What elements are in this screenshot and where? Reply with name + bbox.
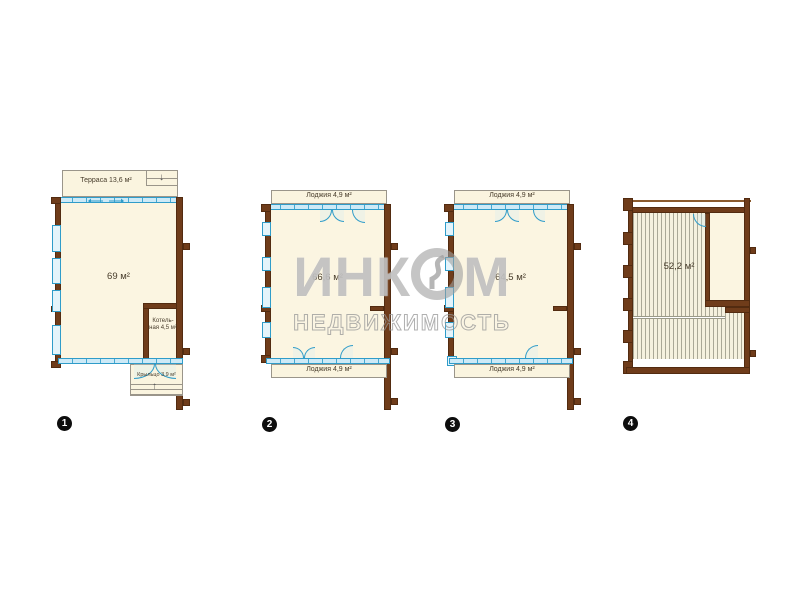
main-room bbox=[271, 210, 384, 358]
loggia-top-label: Лоджия 4,9 м² bbox=[454, 192, 570, 199]
wall-tick bbox=[391, 243, 398, 250]
boiler-room-label: Котель- ная 4,5 м² bbox=[149, 318, 177, 332]
window bbox=[262, 222, 271, 236]
window bbox=[52, 258, 61, 284]
interior-wall-stub bbox=[370, 306, 384, 311]
window bbox=[262, 287, 271, 308]
wall-right bbox=[567, 204, 574, 410]
window bbox=[262, 322, 271, 338]
room-area-label: 52,2 м² bbox=[633, 261, 725, 272]
wall-tick bbox=[750, 350, 756, 357]
wall-tick bbox=[623, 232, 633, 245]
wall-tick bbox=[623, 265, 633, 278]
porch-step bbox=[131, 394, 182, 395]
floor-badge-1: 1 bbox=[57, 416, 72, 431]
wall-tick bbox=[574, 243, 581, 250]
wall-tick bbox=[750, 247, 756, 254]
boiler-room-wall bbox=[143, 303, 177, 309]
room-area-label: 66,6 м² bbox=[271, 272, 384, 283]
void-room-wall bbox=[705, 213, 710, 307]
floor-plan-3: Лоджия 4,9 м² 64,5 м² Лоджия 4,9 м² 3 bbox=[441, 188, 591, 438]
porch-label: Крыльцо 3,9 м² bbox=[132, 372, 181, 379]
wall-tick bbox=[183, 348, 190, 355]
floor-plans-sheet: Терраса 13,6 м² ↓ 69 м² Котель- ная 4,5 bbox=[0, 0, 800, 600]
main-room bbox=[454, 210, 567, 358]
window bbox=[262, 257, 271, 271]
wall-tick bbox=[261, 204, 271, 212]
stairs-icon: ↓ bbox=[146, 170, 178, 186]
roof-edge-line bbox=[630, 200, 751, 202]
floor-badge-3: 3 bbox=[445, 417, 460, 432]
wall-tick bbox=[623, 298, 633, 311]
wall-tick bbox=[183, 399, 190, 406]
window bbox=[445, 257, 454, 271]
wall-tick bbox=[51, 197, 61, 204]
wall-tick bbox=[183, 243, 190, 250]
void-room-wall bbox=[725, 307, 750, 313]
wall-right bbox=[384, 204, 391, 410]
wall-tick bbox=[391, 398, 398, 405]
wall-right bbox=[744, 198, 750, 374]
floor-plan-4: 52,2 м² 4 bbox=[620, 192, 765, 437]
stairs-down-arrow-icon: ↓ bbox=[159, 173, 164, 183]
void-room-wall bbox=[705, 300, 750, 307]
loggia-top-label: Лоджия 4,9 м² bbox=[271, 192, 387, 199]
wall-tick bbox=[574, 398, 581, 405]
floor-plan-2: Лоджия 4,9 м² 66,6 м² Лоджия 4,9 м² 2 bbox=[258, 188, 408, 438]
window bbox=[445, 287, 454, 308]
room-area-label: 69 м² bbox=[61, 271, 176, 282]
floor-badge-2: 2 bbox=[262, 417, 277, 432]
terrace-label: Терраса 13,6 м² bbox=[64, 177, 148, 184]
wall-tick bbox=[623, 330, 633, 343]
interior-wall-stub bbox=[553, 306, 567, 311]
window bbox=[52, 225, 61, 252]
wall-tick bbox=[574, 348, 581, 355]
room-area-label: 64,5 м² bbox=[454, 272, 567, 283]
window bbox=[52, 290, 61, 312]
wall-bottom bbox=[626, 367, 750, 374]
window bbox=[445, 222, 454, 236]
floor-plan-1: Терраса 13,6 м² ↓ 69 м² Котель- ная 4,5 bbox=[48, 168, 203, 430]
wall-left bbox=[628, 198, 633, 374]
void-room bbox=[710, 213, 744, 300]
window bbox=[52, 325, 61, 355]
wall-tick bbox=[391, 348, 398, 355]
wall-tick bbox=[444, 204, 454, 212]
wall-tick bbox=[623, 198, 633, 211]
floor-badge-4: 4 bbox=[623, 416, 638, 431]
stairs-up-arrow-icon: ↑ bbox=[152, 382, 157, 392]
window bbox=[445, 322, 454, 338]
loggia-bottom-label: Лоджия 4,9 м² bbox=[454, 366, 570, 373]
loggia-bottom-label: Лоджия 4,9 м² bbox=[271, 366, 387, 373]
hatch-divider-line bbox=[633, 316, 725, 319]
